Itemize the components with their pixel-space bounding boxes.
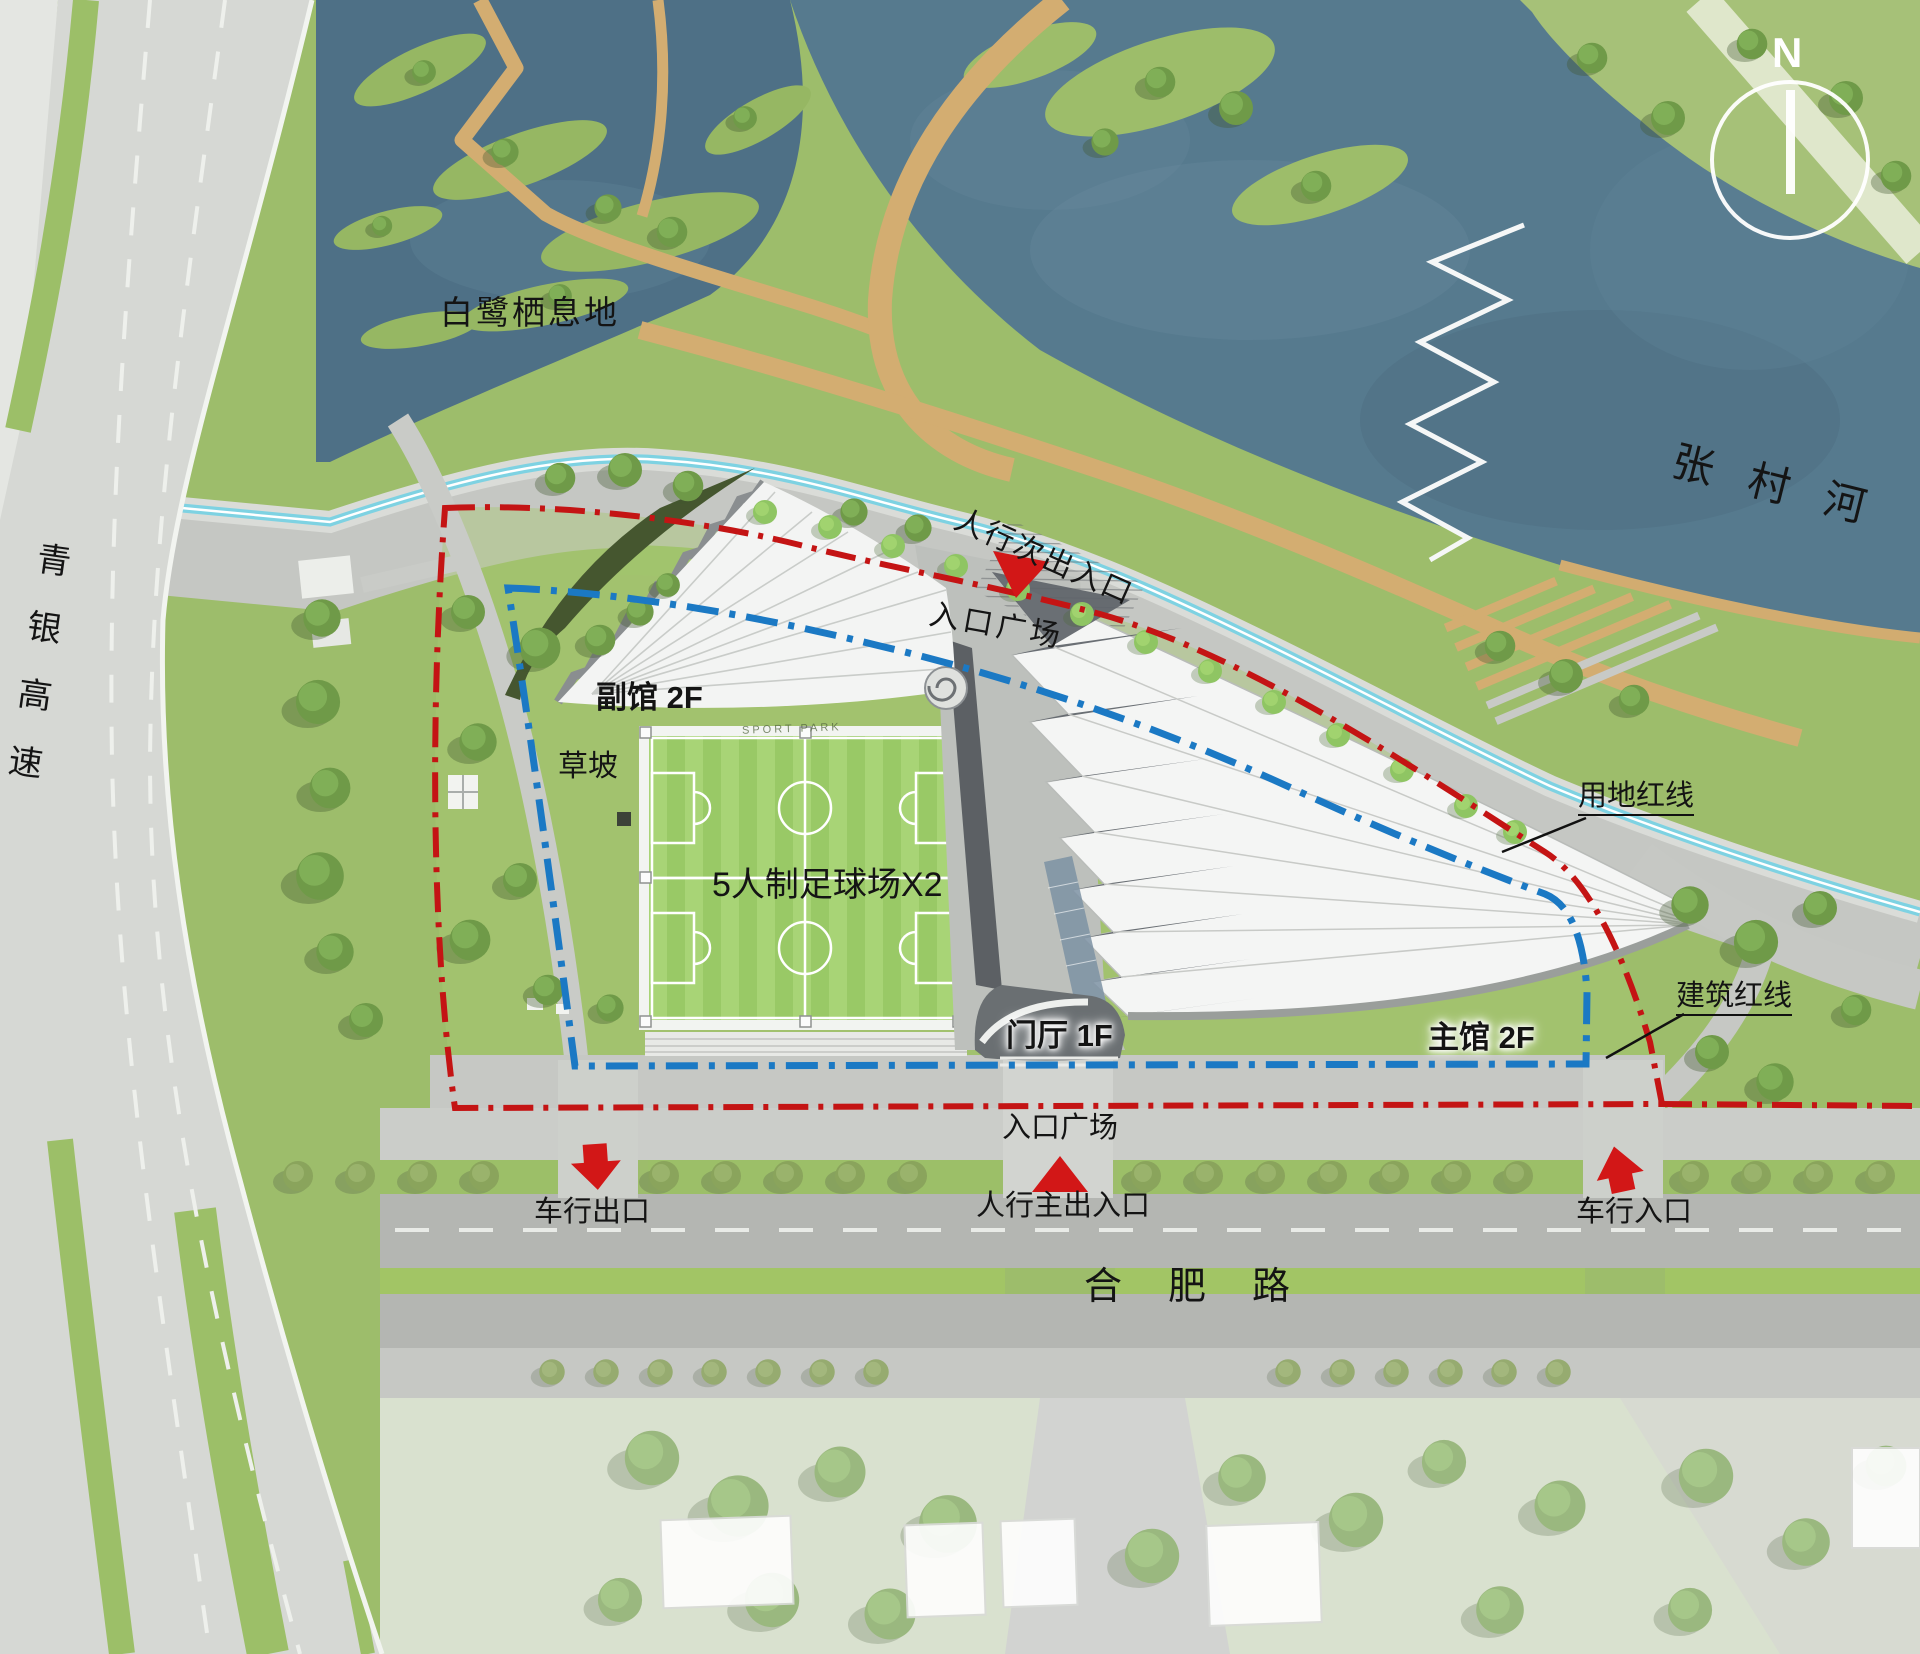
north-label: N [1772, 32, 1802, 74]
site-plan: 白鹭栖息地 青银高速 张村河 人行次出入口 入口广场 副馆 2F 草坡 5人制足… [0, 0, 1920, 1654]
site-plan-rendering [0, 0, 1920, 1654]
building-boundary-label: 建筑红线 [1676, 982, 1792, 1016]
south-road-label: 合肥路 [1084, 1268, 1336, 1306]
site-boundary-label: 用地红线 [1578, 782, 1694, 816]
grass-slope-label: 草坡 [558, 752, 618, 782]
vehicle-exit-label: 车行出口 [534, 1198, 650, 1227]
lobby-label: 门厅 1F [1006, 1020, 1113, 1051]
hefei-road [380, 1060, 1920, 1398]
plaza-south-label: 入口广场 [1002, 1114, 1118, 1143]
spiral-sculpture [925, 667, 967, 709]
field-label: 5人制足球场X2 [712, 868, 943, 902]
pedestrian-main-label: 人行主出入口 [976, 1192, 1150, 1221]
vehicle-entrance-label: 车行入口 [1576, 1198, 1692, 1227]
habitat-label: 白鹭栖息地 [440, 296, 620, 329]
main-hall-label: 主馆 2F [1428, 1022, 1535, 1053]
annex-label: 副馆 2F [596, 682, 703, 713]
south-context [380, 1398, 1920, 1654]
